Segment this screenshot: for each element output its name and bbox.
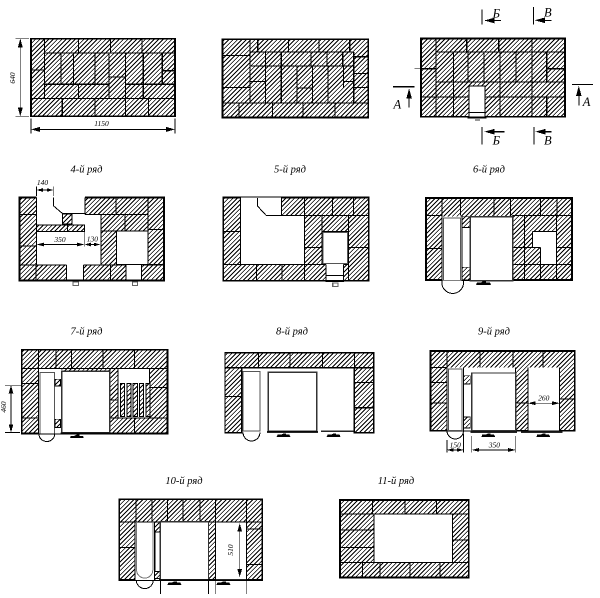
svg-text:Б: Б <box>492 134 501 148</box>
svg-text:640: 640 <box>8 72 17 84</box>
svg-text:1150: 1150 <box>94 119 109 128</box>
svg-text:350: 350 <box>53 235 66 244</box>
svg-text:11-й ряд: 11-й ряд <box>378 476 414 487</box>
svg-text:6-й ряд: 6-й ряд <box>473 165 505 176</box>
svg-text:7-й ряд: 7-й ряд <box>71 326 103 337</box>
svg-text:140: 140 <box>37 178 49 187</box>
svg-text:А: А <box>393 98 402 112</box>
svg-text:9-й ряд: 9-й ряд <box>478 326 510 337</box>
svg-text:Б: Б <box>492 7 501 21</box>
svg-text:8-й ряд: 8-й ряд <box>276 326 308 337</box>
svg-text:460: 460 <box>0 401 8 413</box>
svg-text:А: А <box>582 95 591 109</box>
svg-text:5-й ряд: 5-й ряд <box>274 165 306 176</box>
svg-text:510: 510 <box>226 544 235 556</box>
svg-text:130: 130 <box>87 235 99 244</box>
svg-text:350: 350 <box>488 440 501 449</box>
svg-text:10-й ряд: 10-й ряд <box>165 476 202 487</box>
svg-text:В: В <box>544 6 552 20</box>
svg-text:В: В <box>544 134 552 148</box>
svg-text:150: 150 <box>450 440 462 449</box>
svg-text:260: 260 <box>538 394 550 403</box>
svg-text:4-й ряд: 4-й ряд <box>71 165 103 176</box>
